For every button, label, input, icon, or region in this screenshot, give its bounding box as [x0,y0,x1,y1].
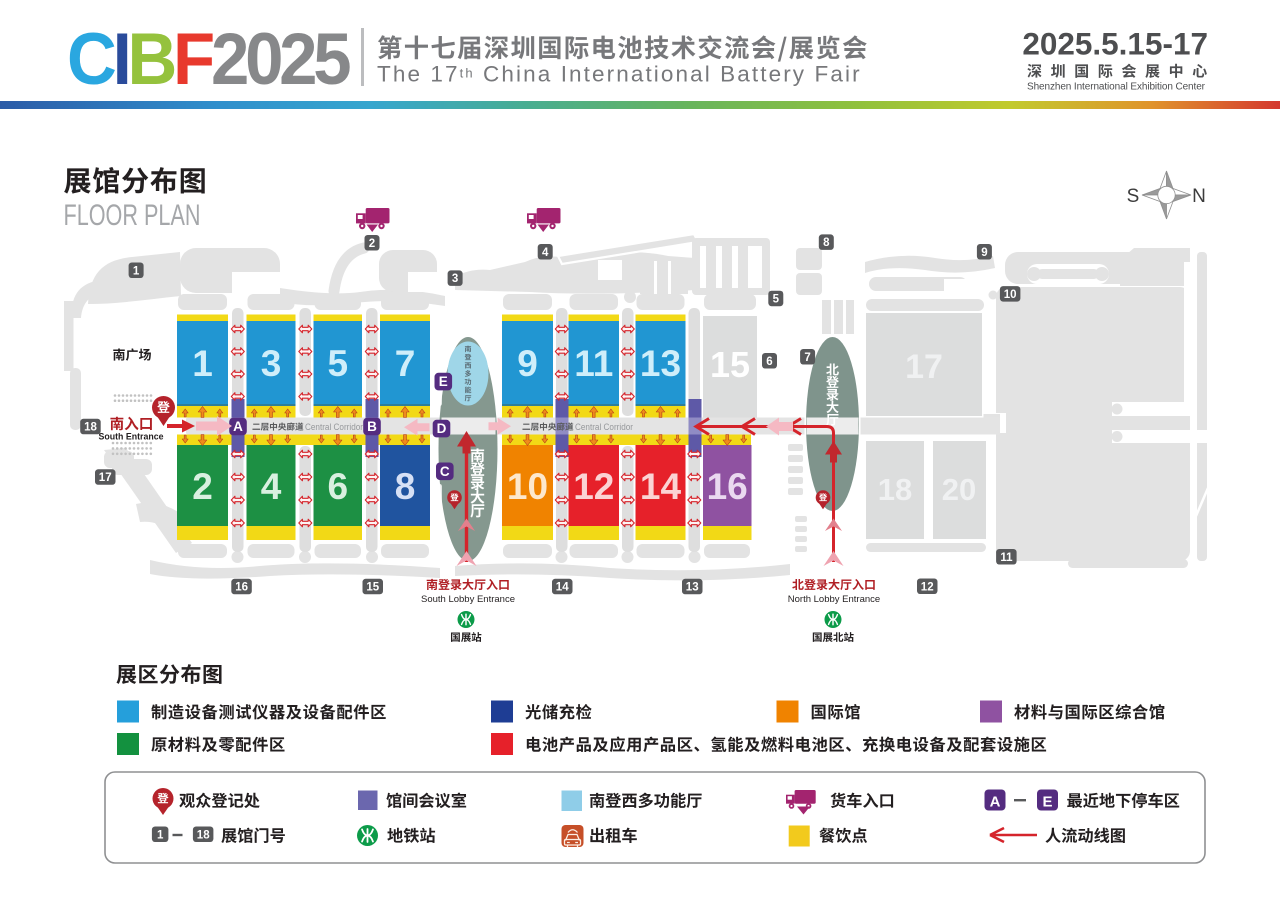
svg-text:Central Corridor: Central Corridor [575,422,634,433]
svg-text:13: 13 [686,582,699,594]
svg-text:S: S [1127,186,1140,207]
svg-text:16: 16 [235,582,248,594]
svg-text:2: 2 [369,238,375,250]
svg-text:FLOOR PLAN: FLOOR PLAN [64,199,201,232]
svg-text:11: 11 [574,343,613,384]
svg-text:3: 3 [452,273,458,285]
svg-text:4: 4 [261,466,282,507]
svg-text:8: 8 [395,466,416,507]
svg-text:10: 10 [1004,289,1017,301]
svg-text:A: A [990,793,1001,810]
svg-text:17: 17 [99,472,112,484]
svg-text:13: 13 [640,343,681,384]
svg-text:4: 4 [542,247,549,259]
svg-text:5: 5 [773,294,780,306]
svg-text:15: 15 [710,344,750,385]
svg-text:6: 6 [766,356,772,368]
svg-text:South Entrance: South Entrance [98,432,163,442]
svg-text:18: 18 [878,472,912,507]
svg-text:14: 14 [640,466,682,507]
svg-text:2: 2 [192,466,213,507]
svg-text:North Lobby Entrance: North Lobby Entrance [788,594,880,605]
svg-text:South Lobby Entrance: South Lobby Entrance [421,594,515,605]
svg-text:The 17th China International B: The 17th China International Battery Fai… [377,62,862,87]
svg-text:18: 18 [197,829,210,841]
svg-text:B: B [367,419,377,434]
svg-text:Shenzhen International Exhibit: Shenzhen International Exhibition Center [1027,82,1206,93]
svg-text:12: 12 [921,581,934,593]
svg-text:A: A [233,419,243,434]
svg-text:7: 7 [395,343,416,384]
svg-text:10: 10 [507,466,548,507]
svg-text:N: N [1192,186,1206,207]
svg-text:16: 16 [707,466,748,507]
svg-text:2025.5.15-17: 2025.5.15-17 [1022,26,1208,62]
svg-text:12: 12 [573,466,614,507]
svg-text:3: 3 [261,343,282,384]
svg-text:D: D [437,421,447,436]
svg-text:8: 8 [823,237,830,249]
svg-text:11: 11 [1000,552,1013,564]
svg-text:9: 9 [981,247,987,259]
svg-text:C: C [440,464,450,479]
svg-text:1: 1 [157,829,164,841]
svg-text:9: 9 [517,343,538,384]
svg-text:Central Corridor: Central Corridor [305,422,364,433]
svg-text:20: 20 [942,472,976,507]
svg-text:E: E [439,374,448,389]
svg-text:6: 6 [328,466,349,507]
svg-text:1: 1 [192,343,213,384]
svg-text:14: 14 [556,582,569,594]
svg-text:E: E [1042,793,1052,810]
svg-text:15: 15 [366,582,379,594]
svg-text:18: 18 [84,422,97,434]
svg-text:17: 17 [905,348,943,386]
svg-text:7: 7 [804,352,810,364]
svg-text:5: 5 [328,343,349,384]
svg-text:1: 1 [133,265,140,277]
